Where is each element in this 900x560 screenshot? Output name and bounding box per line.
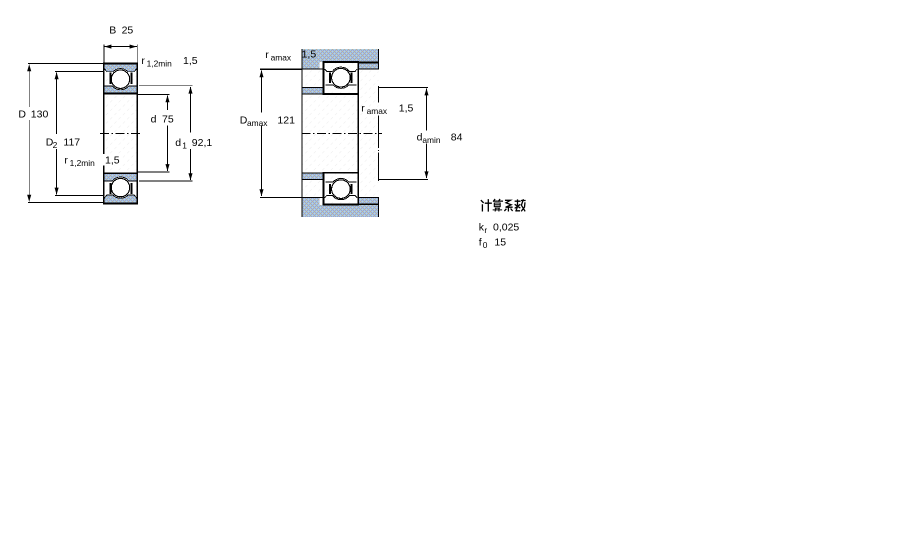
svg-text:92,1: 92,1 — [192, 137, 213, 149]
svg-text:r: r — [484, 225, 487, 235]
svg-text:d: d — [175, 137, 181, 149]
svg-text:1,5: 1,5 — [183, 55, 198, 67]
svg-text:r: r — [141, 55, 145, 67]
svg-text:2: 2 — [53, 140, 58, 150]
svg-text:1: 1 — [182, 141, 187, 151]
svg-text:25: 25 — [122, 24, 134, 36]
svg-text:amax: amax — [271, 52, 292, 62]
svg-text:amax: amax — [367, 106, 388, 116]
svg-text:1,2min: 1,2min — [70, 158, 95, 168]
svg-text:15: 15 — [494, 237, 506, 249]
svg-text:D: D — [18, 109, 26, 121]
svg-text:r: r — [265, 49, 269, 61]
svg-text:1,5: 1,5 — [105, 155, 120, 167]
svg-text:1,2min: 1,2min — [147, 58, 172, 68]
svg-text:B: B — [109, 24, 116, 36]
svg-text:130: 130 — [31, 109, 49, 121]
svg-text:0,025: 0,025 — [493, 222, 519, 234]
svg-text:f: f — [479, 237, 482, 249]
svg-text:121: 121 — [277, 115, 295, 127]
svg-text:r: r — [64, 155, 68, 167]
svg-text:1,5: 1,5 — [302, 49, 317, 61]
svg-text:amax: amax — [247, 118, 268, 128]
svg-text:r: r — [361, 103, 365, 115]
svg-text:75: 75 — [162, 113, 174, 125]
svg-text:d: d — [151, 113, 157, 125]
svg-text:amin: amin — [422, 135, 440, 145]
svg-text:84: 84 — [451, 131, 463, 143]
svg-text:0: 0 — [483, 240, 488, 250]
svg-text:1,5: 1,5 — [399, 102, 414, 114]
svg-text:117: 117 — [63, 136, 80, 148]
